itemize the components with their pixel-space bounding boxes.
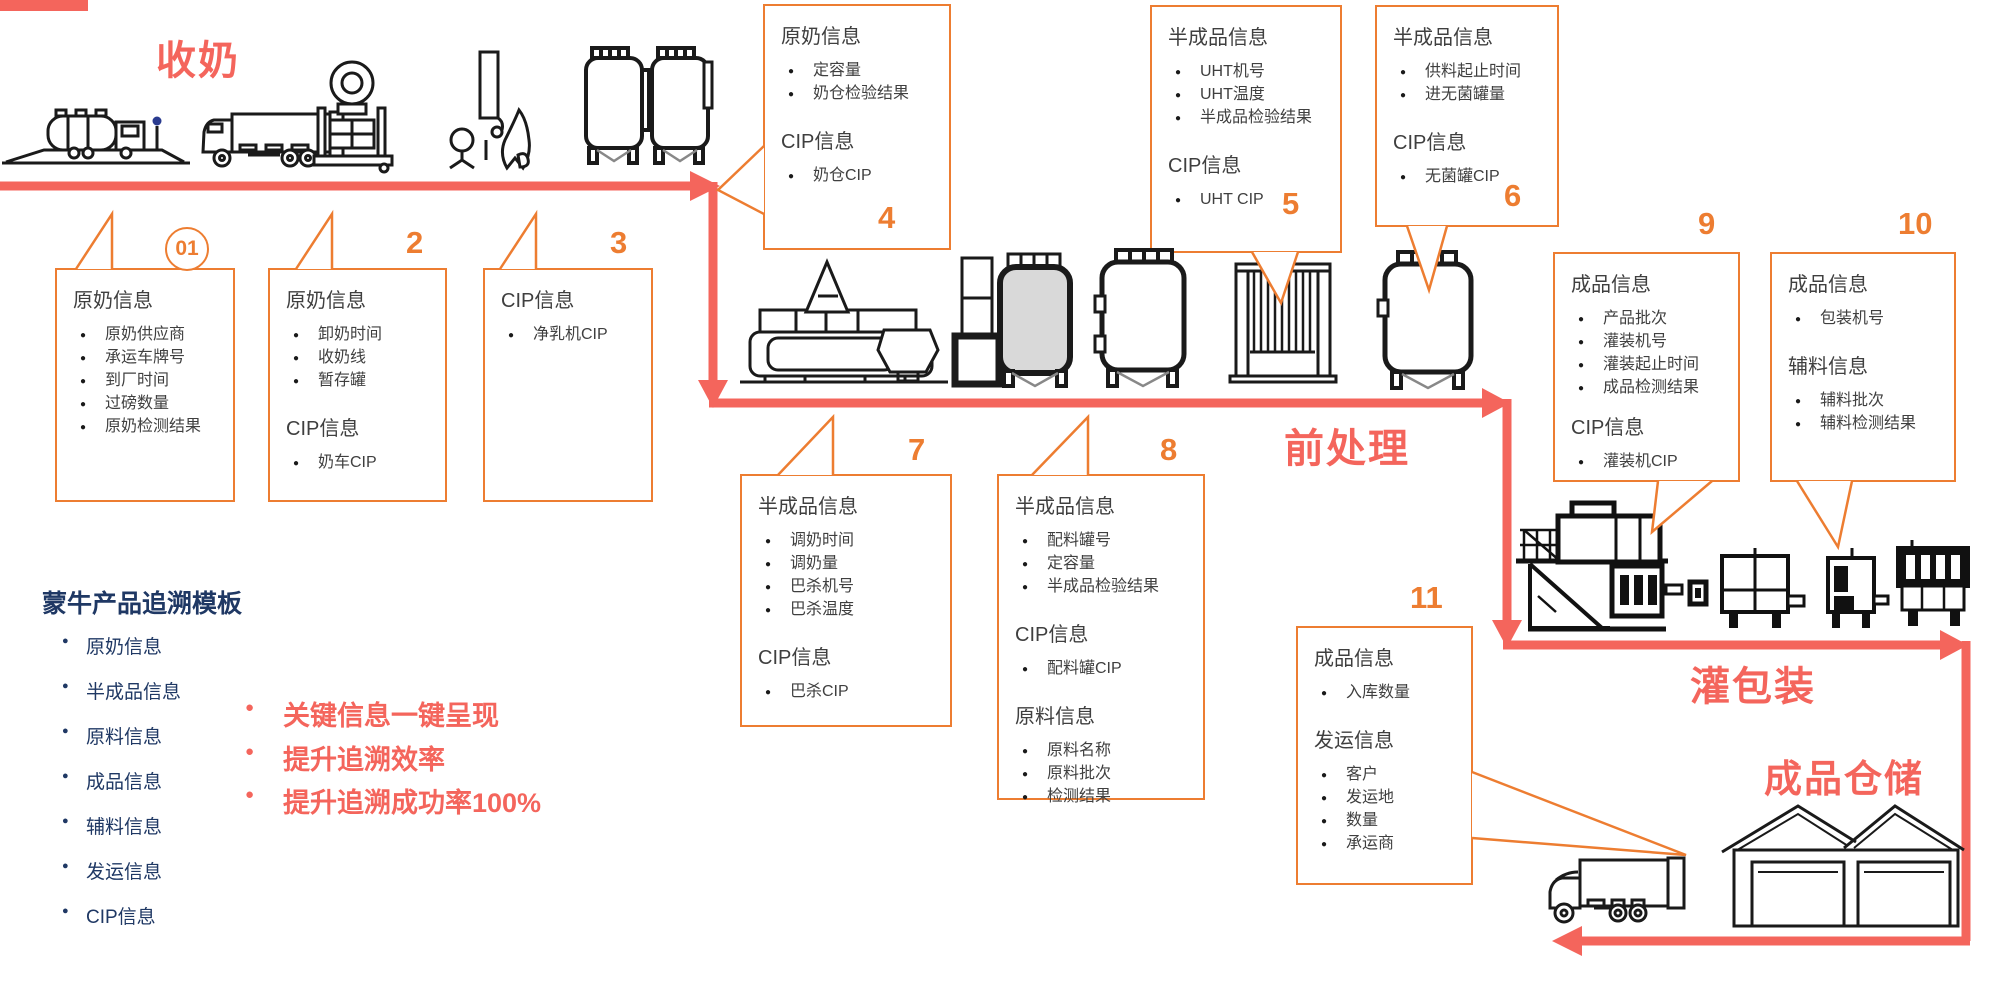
delivery-truck-icon — [1550, 858, 1684, 922]
stage-label-pretreatment: 前处理 — [1284, 416, 1410, 474]
step-number-6: 6 — [1504, 178, 1521, 214]
list-item: 承运车牌号 — [73, 346, 223, 369]
list-item: 半成品检验结果 — [1015, 575, 1193, 598]
legend-item-auxiliary: 辅料信息 — [62, 812, 162, 839]
list-item: 产品批次 — [1571, 307, 1728, 330]
section-title: 成品信息 — [1788, 268, 1944, 297]
list-item: 奶仓检验结果 — [781, 82, 939, 105]
section-title: CIP信息 — [781, 125, 939, 154]
list-item: 半成品检验结果 — [1168, 106, 1330, 129]
section-title: CIP信息 — [1393, 126, 1547, 155]
section-title: 原料信息 — [1015, 700, 1193, 729]
list-item: 配料罐CIP — [1015, 657, 1193, 680]
conveyor-cart-icon — [1722, 548, 1804, 628]
section-title: CIP信息 — [1015, 618, 1193, 647]
list-item: 包装机号 — [1788, 307, 1944, 330]
legend-item-raw-milk: 原奶信息 — [62, 632, 162, 659]
section-title: CIP信息 — [1571, 411, 1728, 440]
step-number-5: 5 — [1282, 186, 1299, 222]
uht-plate-exchanger-icon — [1230, 264, 1336, 382]
page-title: 蒙牛产品追溯模板 — [42, 584, 242, 620]
list-item: 原料名称 — [1015, 739, 1193, 762]
section-title: CIP信息 — [1168, 149, 1330, 178]
callout-box-10-packing: 成品信息 包装机号 辅料信息 辅料批次 辅料检测结果 — [1770, 252, 1956, 482]
list-item: 定容量 — [781, 59, 939, 82]
list-item: 暂存罐 — [286, 369, 435, 392]
highlight-one-click: 关键信息一键呈现 — [243, 694, 499, 733]
list-item: 客户 — [1314, 763, 1461, 786]
list-item: 入库数量 — [1314, 681, 1461, 704]
callout-box-6-aseptic-tank: 半成品信息 供料起止时间 进无菌罐量 CIP信息 无菌罐CIP — [1375, 5, 1559, 227]
storage-tank-icon — [1095, 250, 1184, 386]
highlight-efficiency: 提升追溯效率 — [243, 738, 445, 777]
step-number-8: 8 — [1160, 432, 1177, 468]
list-item: 辅料批次 — [1788, 389, 1944, 412]
callout-box-9-filling: 成品信息 产品批次 灌装机号 灌装起止时间 成品检测结果 CIP信息 灌装机CI… — [1553, 252, 1740, 482]
callout-box-2-unloading: 原奶信息 卸奶时间 收奶线 暂存罐 CIP信息 奶车CIP — [268, 268, 447, 502]
stage-label-milk-collection: 收奶 — [156, 28, 240, 86]
list-item: 发运地 — [1314, 786, 1461, 809]
list-item: 灌装机CIP — [1571, 450, 1728, 473]
list-item: 巴杀机号 — [758, 575, 940, 598]
list-item: 奶仓CIP — [781, 164, 939, 187]
list-item: 成品检测结果 — [1571, 376, 1728, 399]
callout-box-1-raw-milk: 原奶信息 原奶供应商 承运车牌号 到厂时间 过磅数量 原奶检测结果 — [55, 268, 235, 502]
list-item: UHT温度 — [1168, 83, 1330, 106]
section-title: CIP信息 — [501, 284, 641, 313]
section-title: 成品信息 — [1571, 268, 1728, 297]
list-item: 巴杀CIP — [758, 680, 940, 703]
list-item: 原料批次 — [1015, 762, 1193, 785]
traceability-flow-diagram: 收奶 前处理 灌包装 成品仓储 — [0, 0, 2000, 988]
step-number-9: 9 — [1698, 206, 1715, 242]
step-number-7: 7 — [908, 432, 925, 468]
list-item: 奶车CIP — [286, 451, 435, 474]
step-number-10: 10 — [1898, 206, 1932, 242]
list-item: 调奶量 — [758, 552, 940, 575]
list-item: 净乳机CIP — [501, 323, 641, 346]
callout-box-11-shipping: 成品信息 入库数量 发运信息 客户 发运地 数量 承运商 — [1296, 626, 1473, 885]
list-item: 检测结果 — [1015, 785, 1193, 808]
step-number-1: 01 — [165, 227, 209, 271]
callout-box-7-pasteurization: 半成品信息 调奶时间 调奶量 巴杀机号 巴杀温度 CIP信息 巴杀CIP — [740, 474, 952, 727]
warehouse-icon — [1722, 806, 1964, 926]
list-item: 供料起止时间 — [1393, 60, 1547, 83]
step-number-2: 2 — [406, 225, 423, 261]
callout-box-3-clarifier-cip: CIP信息 净乳机CIP — [483, 268, 653, 502]
raw-milk-silos-icon — [586, 48, 712, 163]
section-title: CIP信息 — [758, 641, 940, 670]
top-left-accent-bar — [0, 0, 88, 11]
list-item: 配料罐号 — [1015, 529, 1193, 552]
list-item: 承运商 — [1314, 832, 1461, 855]
list-item: 巴杀温度 — [758, 598, 940, 621]
carton-packer-icon — [1898, 540, 1968, 626]
section-title: 半成品信息 — [1168, 21, 1330, 50]
callout-box-4-milk-silo: 原奶信息 定容量 奶仓检验结果 CIP信息 奶仓CIP — [763, 4, 951, 250]
list-item: 卸奶时间 — [286, 323, 435, 346]
legend-item-semi-finished: 半成品信息 — [62, 677, 181, 704]
step-number-4: 4 — [878, 200, 895, 236]
platform-scale-icon — [314, 62, 392, 172]
list-item: 进无菌罐量 — [1393, 83, 1547, 106]
stage-label-filling-packing: 灌包装 — [1690, 654, 1816, 712]
section-title: 原奶信息 — [73, 284, 223, 313]
list-item: 数量 — [1314, 809, 1461, 832]
section-title: 半成品信息 — [758, 490, 940, 519]
callout-box-5-uht: 半成品信息 UHT机号 UHT温度 半成品检验结果 CIP信息 UHT CIP — [1150, 5, 1342, 253]
milk-tanker-weighbridge-icon — [2, 110, 190, 163]
section-title: 辅料信息 — [1788, 350, 1944, 379]
list-item: 收奶线 — [286, 346, 435, 369]
list-item: UHT CIP — [1168, 188, 1330, 211]
list-item: 过磅数量 — [73, 392, 223, 415]
section-title: 原奶信息 — [781, 20, 939, 49]
list-item: 灌装起止时间 — [1571, 353, 1728, 376]
labeling-machine-icon — [1828, 548, 1888, 628]
step-number-11: 11 — [1410, 580, 1443, 616]
section-title: 原奶信息 — [286, 284, 435, 313]
aseptic-tank-icon — [1378, 252, 1471, 388]
milk-separator-icon — [450, 52, 529, 168]
stage-label-finished-warehouse: 成品仓储 — [1764, 748, 1924, 803]
list-item: 调奶时间 — [758, 529, 940, 552]
callout-box-8-batching: 半成品信息 配料罐号 定容量 半成品检验结果 CIP信息 配料罐CIP 原料信息… — [997, 474, 1205, 800]
list-item: 无菌罐CIP — [1393, 165, 1547, 188]
milk-truck-icon — [203, 112, 343, 166]
list-item: 原奶检测结果 — [73, 415, 223, 438]
list-item: 原奶供应商 — [73, 323, 223, 346]
list-item: 灌装机号 — [1571, 330, 1728, 353]
section-title: 成品信息 — [1314, 642, 1461, 671]
section-title: 半成品信息 — [1393, 21, 1547, 50]
pasteurizer-line-icon — [740, 262, 948, 382]
legend-item-raw-material: 原料信息 — [62, 722, 162, 749]
list-item: 定容量 — [1015, 552, 1193, 575]
mixing-tank-icon — [955, 254, 1070, 386]
highlight-success-rate: 提升追溯成功率100% — [243, 781, 541, 820]
filling-machine-icon — [1516, 503, 1706, 629]
step-number-3: 3 — [610, 225, 627, 261]
list-item: 辅料检测结果 — [1788, 412, 1944, 435]
section-title: 半成品信息 — [1015, 490, 1193, 519]
section-title: CIP信息 — [286, 412, 435, 441]
list-item: 到厂时间 — [73, 369, 223, 392]
legend-item-shipping: 发运信息 — [62, 857, 162, 884]
section-title: 发运信息 — [1314, 724, 1461, 753]
list-item: UHT机号 — [1168, 60, 1330, 83]
legend-item-finished: 成品信息 — [62, 767, 162, 794]
legend-item-cip: CIP信息 — [62, 902, 156, 929]
